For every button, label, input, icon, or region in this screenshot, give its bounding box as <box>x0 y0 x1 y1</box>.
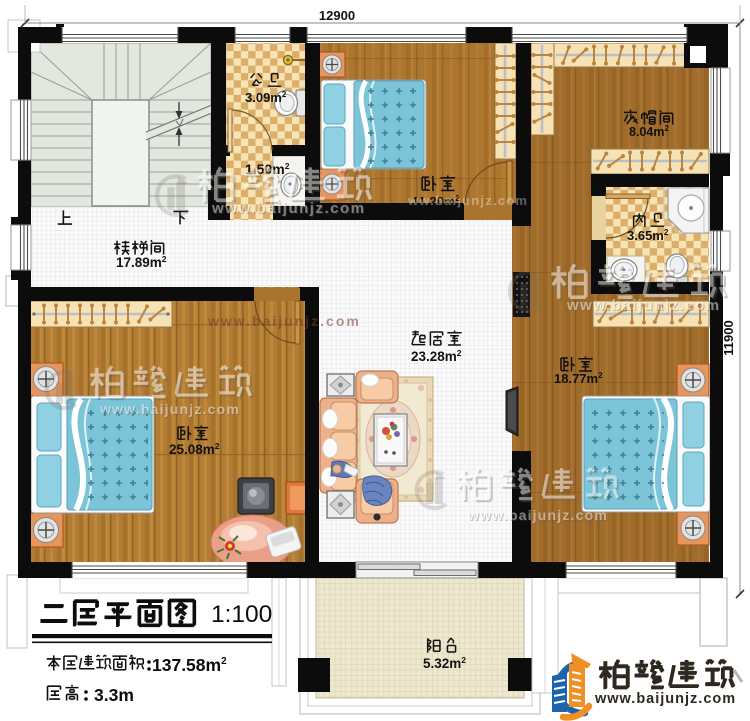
svg-text:3.09m2: 3.09m2 <box>245 90 287 105</box>
svg-text:www.baijunjz.com: www.baijunjz.com <box>99 401 240 417</box>
svg-text:www.baijunjz.com: www.baijunjz.com <box>566 297 720 314</box>
svg-text:www.baijunjz.com: www.baijunjz.com <box>594 691 736 707</box>
svg-text:17.89m2: 17.89m2 <box>116 254 167 270</box>
svg-text:137.58m2: 137.58m2 <box>152 655 227 675</box>
svg-text:www.baijunjz.com: www.baijunjz.com <box>211 200 365 217</box>
svg-text:23.28m2: 23.28m2 <box>411 348 462 364</box>
svg-text:18.77m2: 18.77m2 <box>554 371 603 386</box>
svg-text:www.baijunjz.com: www.baijunjz.com <box>207 313 361 329</box>
svg-text:www.baijunjz.com: www.baijunjz.com <box>467 507 608 523</box>
svg-text:3.3m: 3.3m <box>94 685 134 705</box>
svg-text:1:100: 1:100 <box>211 601 272 628</box>
svg-text:11900: 11900 <box>721 320 736 355</box>
svg-text:12900: 12900 <box>319 8 355 23</box>
svg-text:5.32m2: 5.32m2 <box>423 655 466 671</box>
svg-text:25.08m2: 25.08m2 <box>169 441 220 457</box>
svg-text:8.04m2: 8.04m2 <box>629 124 669 139</box>
svg-text:3.65m2: 3.65m2 <box>627 228 669 243</box>
svg-text:ww.baijunjz.com: ww.baijunjz.com <box>407 193 528 208</box>
